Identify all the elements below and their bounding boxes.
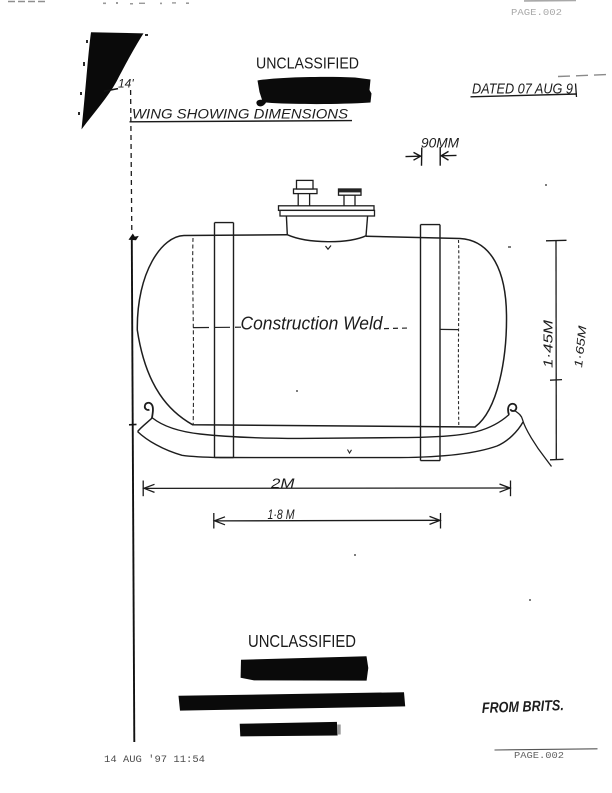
svg-text:UNCLASSIFIED: UNCLASSIFIED (248, 631, 356, 651)
svg-text:2M: 2M (270, 475, 295, 491)
svg-text:FROM BRITS.: FROM BRITS. (482, 697, 565, 717)
svg-text:UNCLASSIFIED: UNCLASSIFIED (256, 56, 359, 73)
svg-text:PAGE.002: PAGE.002 (511, 8, 562, 18)
svg-text:1·45M: 1·45M (542, 319, 556, 368)
svg-text:PAGE.002: PAGE.002 (514, 750, 564, 761)
svg-text:1·8 M: 1·8 M (268, 507, 296, 522)
svg-text:1·65M: 1·65M (573, 325, 589, 369)
svg-text:14 AUG '97 11:54: 14 AUG '97 11:54 (104, 754, 205, 766)
svg-text:Construction Weld: Construction Weld (241, 314, 384, 334)
svg-text:14': 14' (118, 77, 134, 91)
svg-text:WING SHOWING DIMENSIONS: WING SHOWING DIMENSIONS (132, 106, 349, 122)
